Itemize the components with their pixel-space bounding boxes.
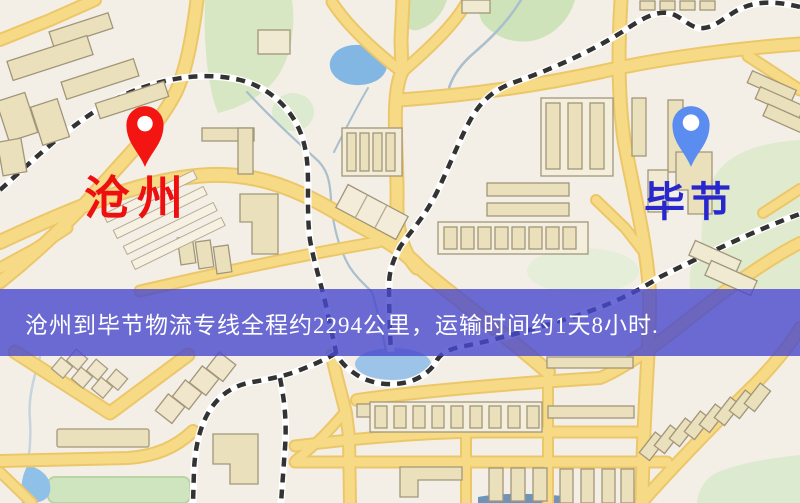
map-canvas[interactable]: 沧州 毕节 沧州到毕节物流专线全程约2294公里，运输时间约1天8小时. — [0, 0, 800, 503]
route-info-text: 沧州到毕节物流专线全程约2294公里，运输时间约1天8小时. — [0, 306, 659, 340]
destination-city-label: 毕节 — [644, 182, 736, 223]
map-artwork — [0, 0, 800, 503]
route-info-banner: 沧州到毕节物流专线全程约2294公里，运输时间约1天8小时. — [0, 289, 800, 356]
destination-pin-icon[interactable] — [669, 104, 713, 168]
origin-city-label: 沧州 — [84, 176, 190, 222]
origin-pin-icon[interactable] — [123, 104, 167, 168]
